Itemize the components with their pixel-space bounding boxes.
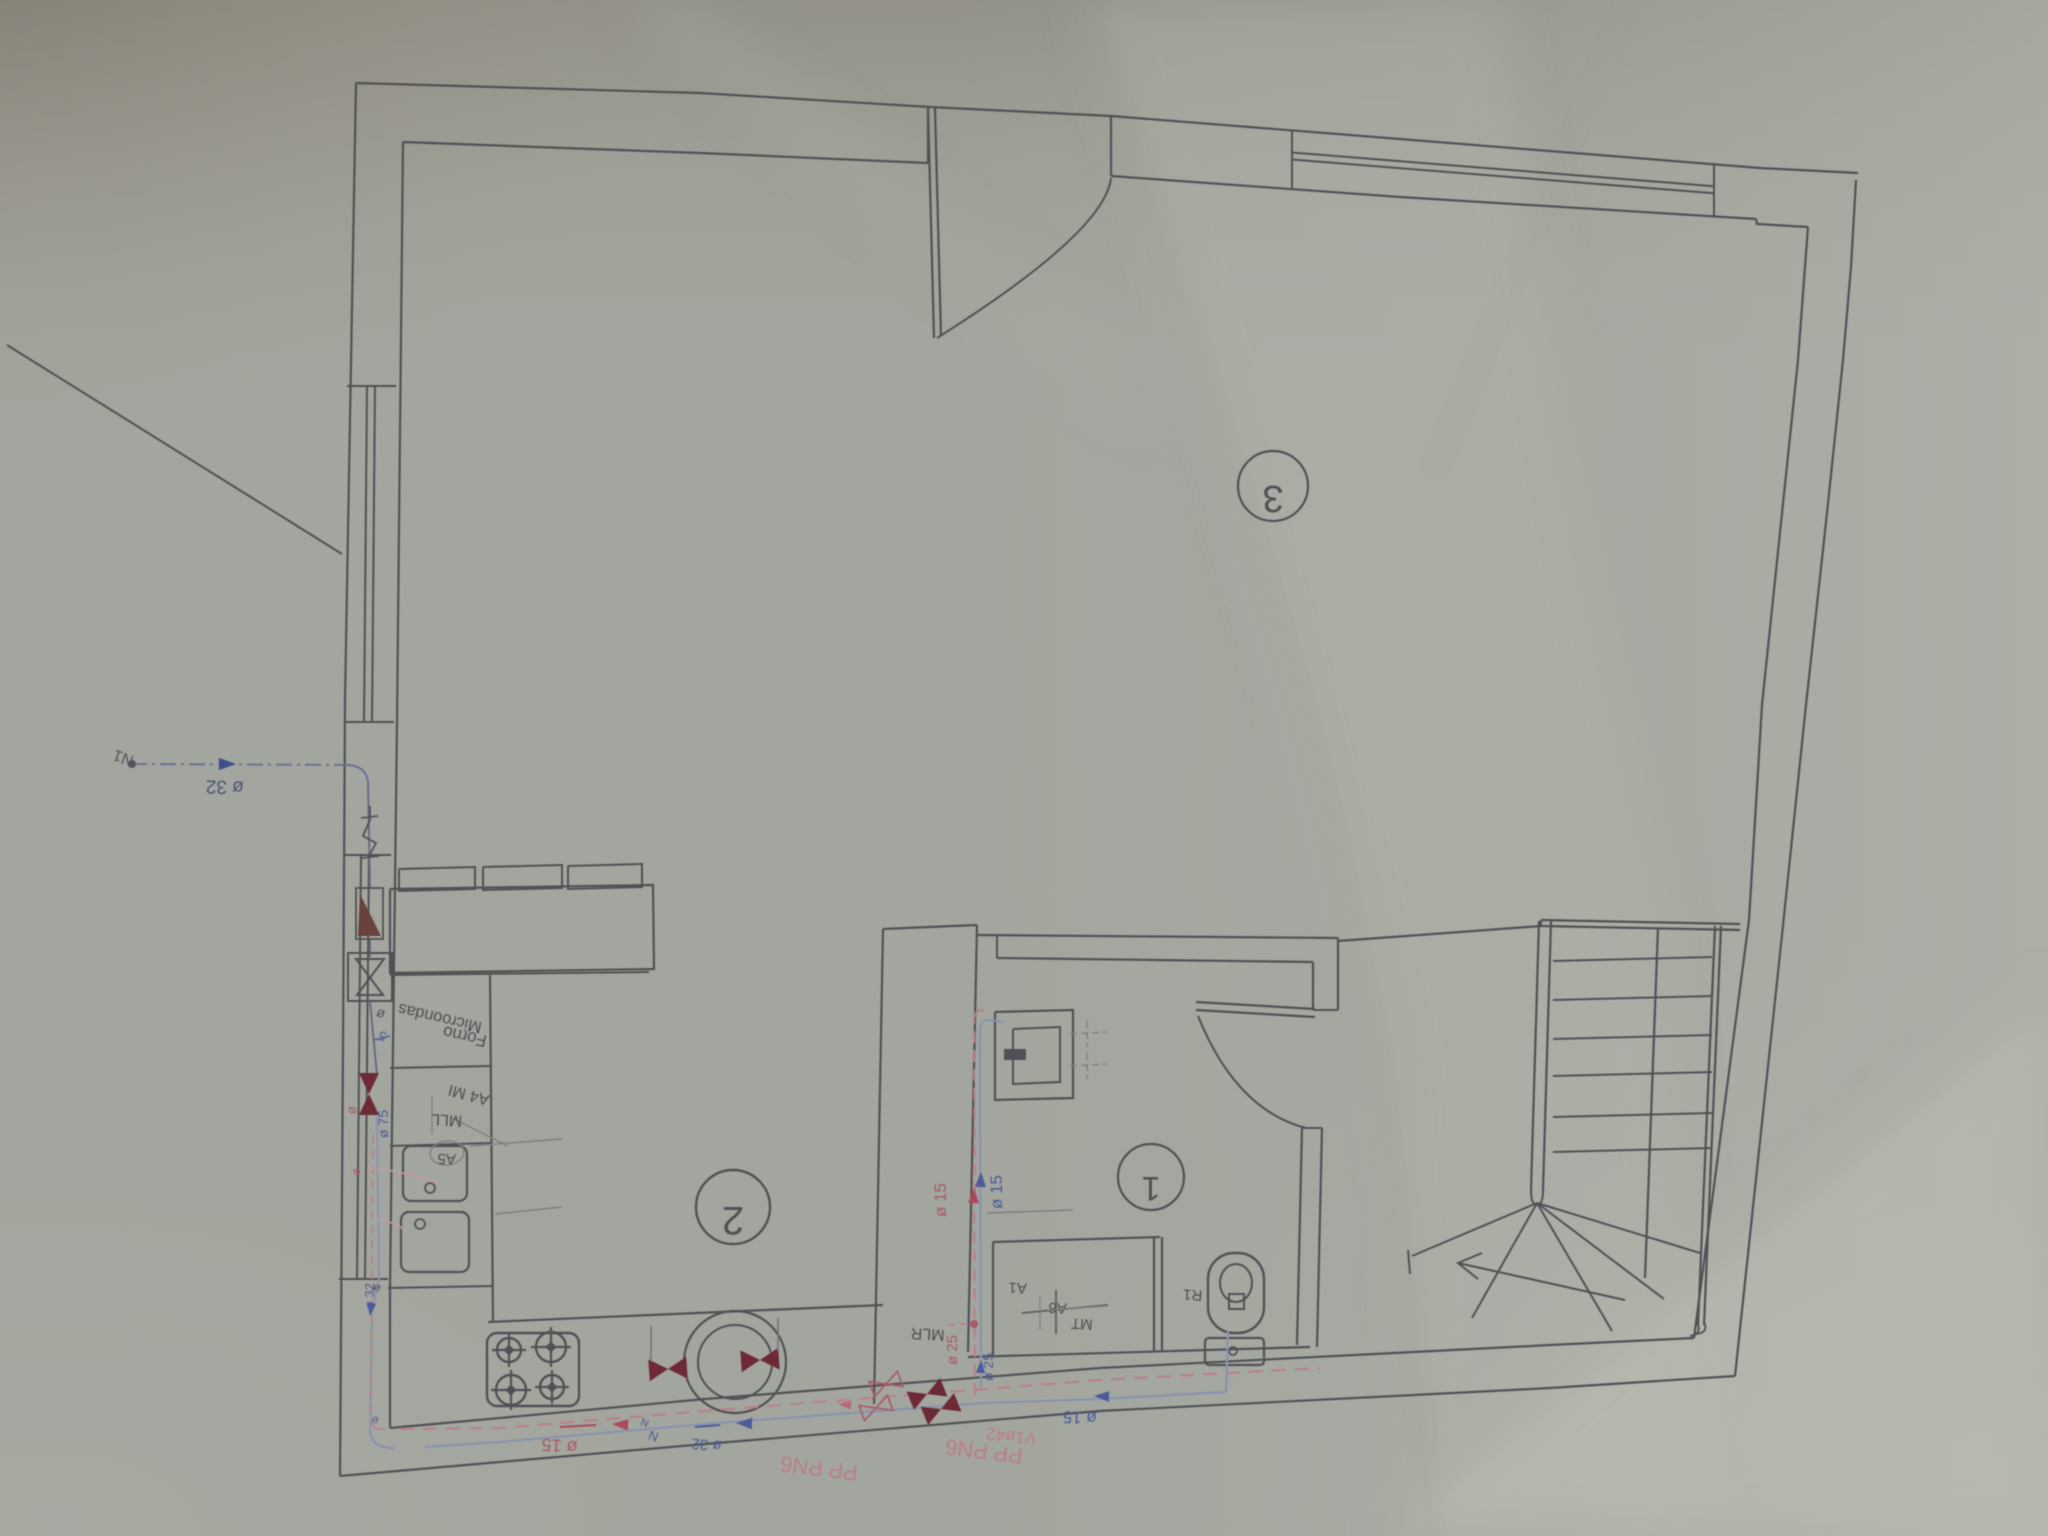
svg-text:MLR: MLR — [910, 1324, 945, 1343]
svg-text:ø 15: ø 15 — [541, 1434, 579, 1457]
svg-text:MLL: MLL — [431, 1110, 463, 1129]
svg-text:2: 2 — [722, 1198, 744, 1242]
svg-text:ø 15: ø 15 — [1062, 1407, 1097, 1428]
svg-text:ø 32: ø 32 — [205, 775, 244, 797]
svg-text:1: 1 — [1142, 1169, 1161, 1207]
svg-text:ø: ø — [349, 1168, 363, 1176]
svg-text:R1: R1 — [1183, 1286, 1203, 1304]
svg-text:ø 25: ø 25 — [944, 1335, 961, 1365]
svg-text:ø 15: ø 15 — [931, 1183, 950, 1217]
svg-text:3: 3 — [1262, 477, 1283, 519]
svg-text:A1: A1 — [1008, 1279, 1027, 1297]
svg-text:A5: A5 — [437, 1150, 456, 1168]
svg-text:ø: ø — [344, 1106, 359, 1114]
svg-text:ø 32: ø 32 — [691, 1435, 722, 1455]
svg-text:ø 75: ø 75 — [375, 1110, 391, 1138]
svg-text:A6: A6 — [1048, 1299, 1067, 1317]
svg-text:MT: MT — [1070, 1314, 1093, 1332]
svg-text:ø 15: ø 15 — [987, 1175, 1006, 1209]
